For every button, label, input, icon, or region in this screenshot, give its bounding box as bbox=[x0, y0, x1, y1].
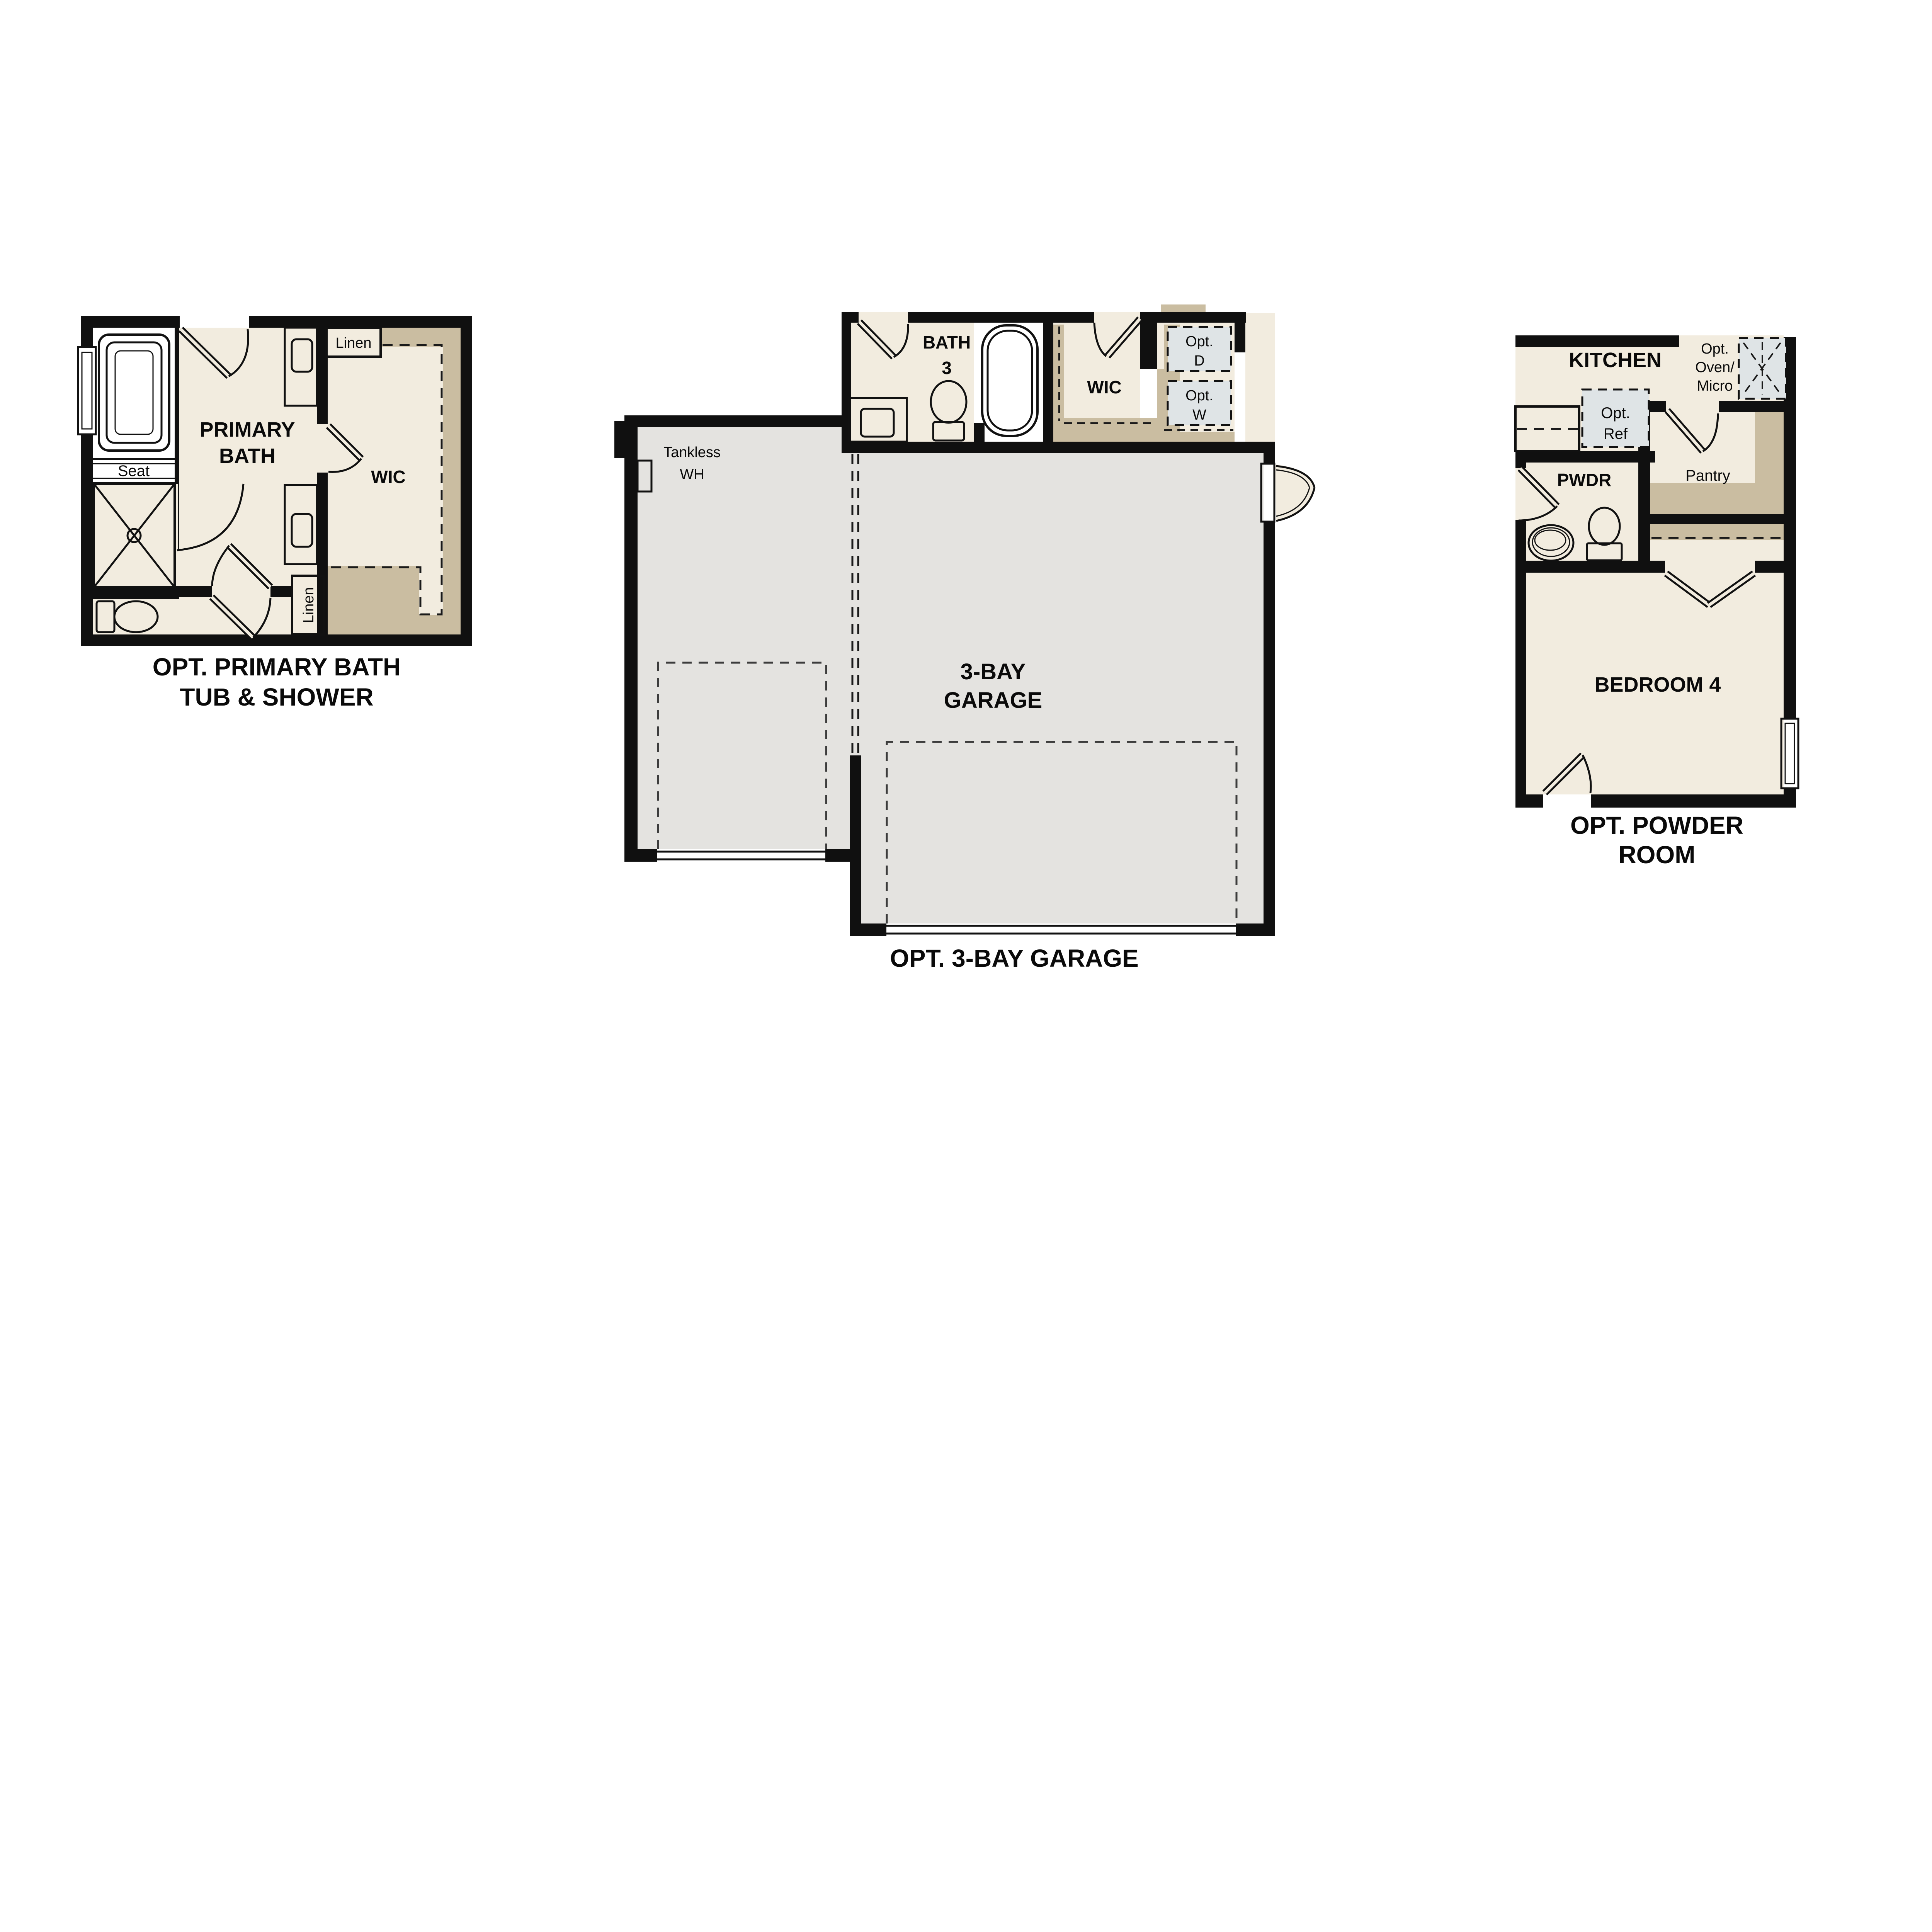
wic-label: WIC bbox=[371, 467, 405, 487]
garage-label-line2: GARAGE bbox=[944, 688, 1043, 713]
opt-w-label-line2: W bbox=[1192, 407, 1206, 423]
kitchen-label: KITCHEN bbox=[1569, 349, 1662, 372]
plan-primary-bath: Seat bbox=[73, 305, 491, 726]
plan-3bay-garage: Tankless WH BATH 3 bbox=[611, 301, 1325, 993]
garage-door-main bbox=[886, 926, 1236, 934]
linen-bottom-label: Linen bbox=[301, 587, 317, 623]
powder-caption: OPT. POWDER ROOM bbox=[1570, 811, 1743, 869]
garage-bay-left-floor bbox=[638, 427, 850, 849]
tankless-label-line2: WH bbox=[680, 466, 704, 483]
opt-d-label-line1: Opt. bbox=[1185, 333, 1213, 350]
oven-label-line2: Oven/ bbox=[1695, 359, 1735, 376]
bath3-label-line2: 3 bbox=[942, 358, 952, 378]
tankless-label-line1: Tankless bbox=[663, 444, 721, 461]
opt-d-label-line2: D bbox=[1194, 353, 1204, 369]
caption-line1: OPT. POWDER bbox=[1570, 811, 1743, 839]
seat-label: Seat bbox=[118, 463, 150, 480]
oven-label-line3: Micro bbox=[1697, 378, 1733, 394]
garage-door-left bbox=[657, 852, 825, 859]
pantry-label: Pantry bbox=[1685, 467, 1730, 484]
opt-ref-box: Opt. Ref bbox=[1582, 389, 1649, 447]
pwdr-label: PWDR bbox=[1557, 470, 1612, 490]
caption-line2: ROOM bbox=[1618, 841, 1695, 869]
opt-w-label-line1: Opt. bbox=[1185, 388, 1213, 404]
oven-label-line1: Opt. bbox=[1701, 341, 1729, 357]
room-label-line1: PRIMARY bbox=[199, 418, 295, 441]
caption-line2: TUB & SHOWER bbox=[180, 683, 373, 711]
ref-label-line1: Opt. bbox=[1601, 405, 1630, 422]
shower-seat: Seat bbox=[93, 458, 175, 484]
plan-powder-room: Opt. Ref Opt. Oven/ Micro PWD bbox=[1507, 328, 1816, 889]
bath3-label-line1: BATH bbox=[923, 332, 971, 352]
garage-main-floor bbox=[850, 453, 1264, 923]
garage-caption: OPT. 3-BAY GARAGE bbox=[890, 944, 1139, 972]
ref-label-line2: Ref bbox=[1604, 425, 1628, 442]
garage-label-line1: 3-BAY bbox=[961, 659, 1026, 684]
wic-label: WIC bbox=[1087, 377, 1121, 397]
bedroom-window bbox=[1781, 719, 1798, 788]
opt-oven-micro-box: Opt. Oven/ Micro bbox=[1695, 338, 1786, 399]
primary-bath-caption: OPT. PRIMARY BATH TUB & SHOWER bbox=[153, 653, 401, 711]
house-floor bbox=[1245, 313, 1275, 442]
caption-line1: OPT. PRIMARY BATH bbox=[153, 653, 401, 681]
linen-top-label: Linen bbox=[336, 335, 372, 351]
bedroom-label: BEDROOM 4 bbox=[1594, 673, 1721, 696]
room-label-line2: BATH bbox=[219, 444, 276, 468]
